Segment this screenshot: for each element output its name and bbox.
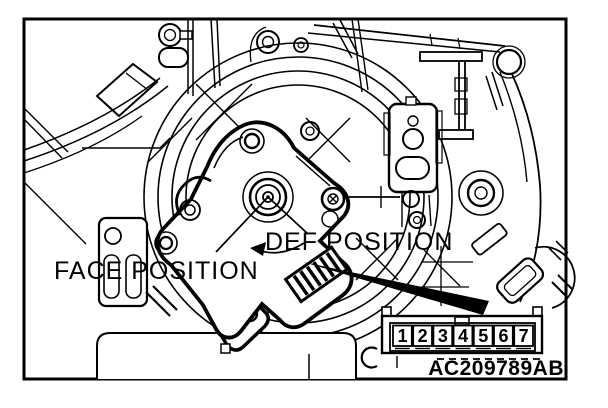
top-middle-details	[250, 19, 368, 92]
def-position-label: DEF POSITION	[265, 230, 453, 255]
harness-connector-part	[494, 256, 546, 306]
connector-pin-1: 1	[393, 326, 412, 346]
pivot-circle	[497, 50, 521, 74]
connector-pin-5: 5	[474, 326, 493, 346]
figure-code: AC209789AB	[420, 358, 564, 379]
connector-pin-7: 7	[514, 326, 533, 346]
connector-pin-6: 6	[494, 326, 513, 346]
panel-cutout	[362, 348, 377, 368]
connector-pin-3: 3	[433, 326, 452, 346]
grommet-rings	[459, 171, 503, 215]
damper-motor-line-art	[0, 0, 608, 408]
diagram-canvas: FACE POSITION DEF POSITION 1 2 3 4 5 6 7…	[0, 0, 608, 408]
connector-pin-2: 2	[413, 326, 432, 346]
face-position-label: FACE POSITION	[54, 259, 259, 284]
connector-pin-4: 4	[454, 326, 473, 346]
